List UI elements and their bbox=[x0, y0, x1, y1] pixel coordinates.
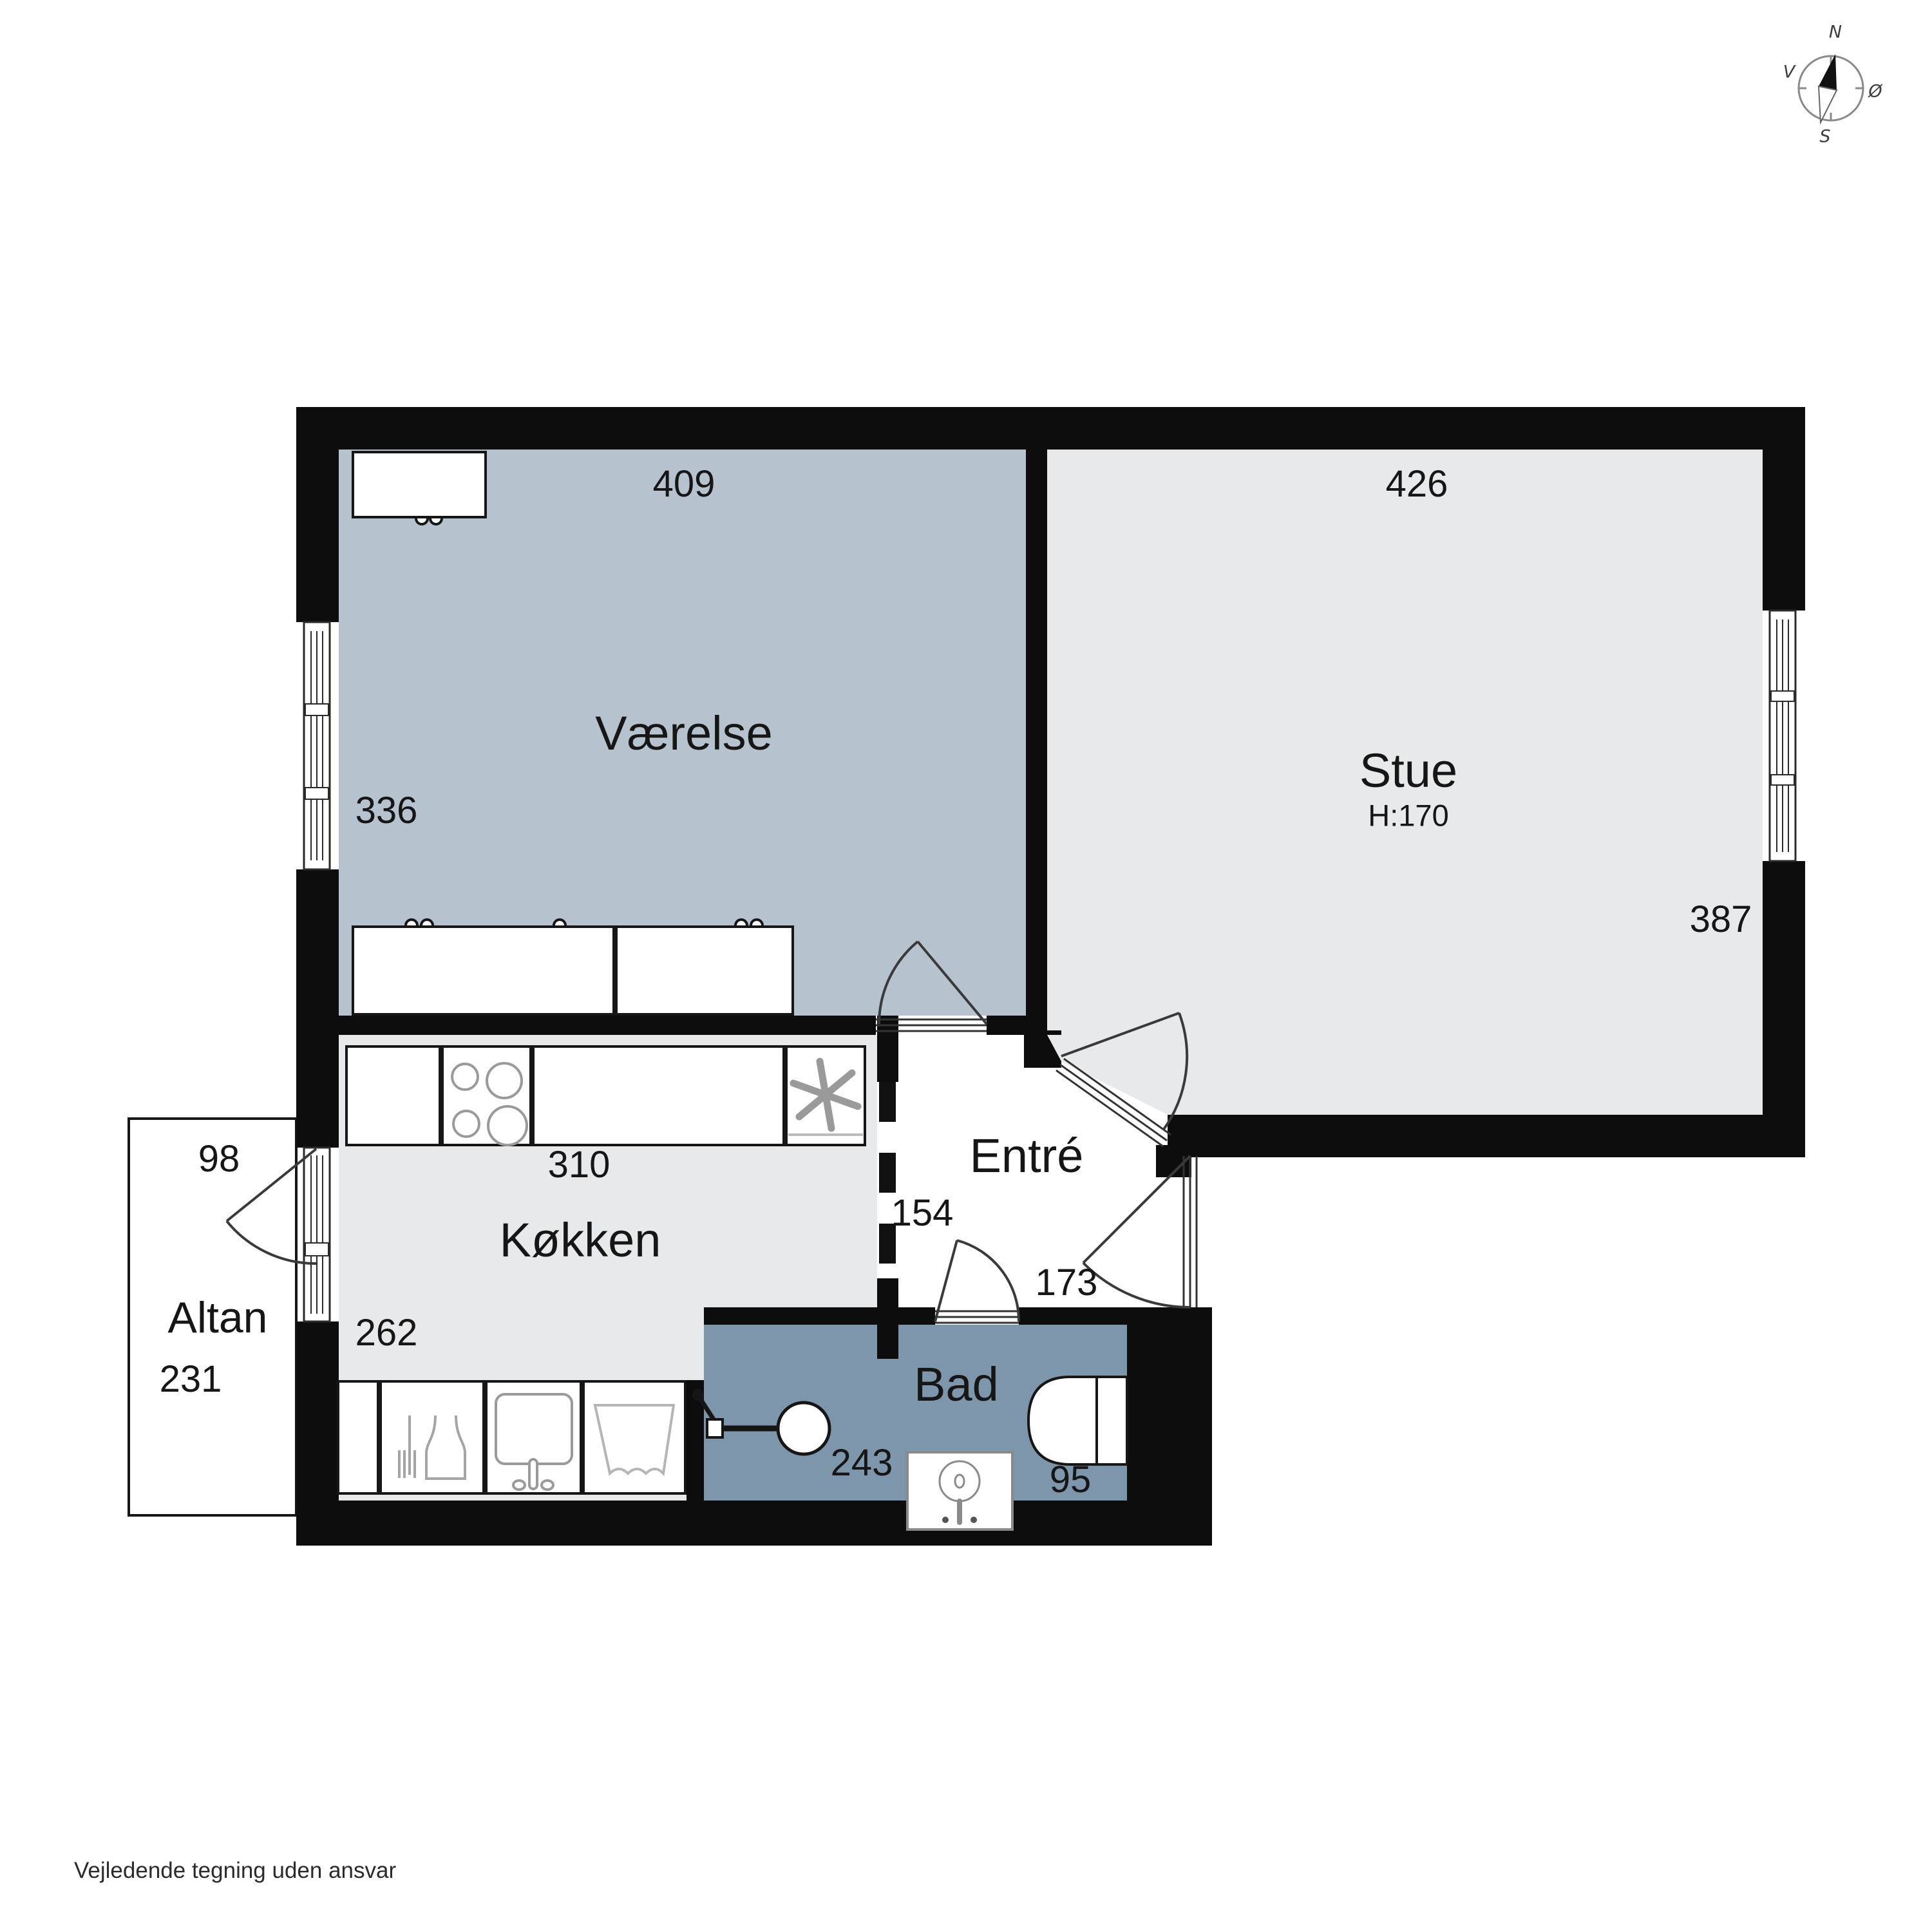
room-label-stue: Stue bbox=[1359, 747, 1457, 795]
stue-right-window bbox=[1770, 611, 1795, 861]
room-label-entre: Entré bbox=[970, 1132, 1084, 1180]
plan-linework bbox=[0, 0, 1932, 1932]
vaerelse-door bbox=[879, 942, 987, 1024]
bathroom-sink-icon bbox=[907, 1452, 1012, 1529]
compass-icon bbox=[1799, 54, 1863, 122]
dim-bad-depth: 95 bbox=[1050, 1461, 1092, 1499]
room-label-koekken: Køkken bbox=[500, 1217, 661, 1264]
stue-ceiling-height: H:170 bbox=[1368, 800, 1448, 831]
dim-koekken-depth: 262 bbox=[355, 1314, 418, 1352]
vaerelse-left-window bbox=[304, 622, 330, 869]
dim-vaerelse-width: 409 bbox=[653, 466, 715, 503]
basket-icon bbox=[595, 1405, 674, 1473]
dim-stue-depth: 387 bbox=[1690, 901, 1752, 938]
toilet-icon bbox=[1028, 1377, 1127, 1464]
disclaimer-text: Vejledende tegning uden ansvar bbox=[74, 1858, 396, 1884]
room-label-vaerelse: Værelse bbox=[595, 710, 773, 757]
shower-icon bbox=[692, 1389, 829, 1454]
stove-burners-icon bbox=[452, 1063, 527, 1145]
dim-entre-width: 154 bbox=[891, 1195, 954, 1232]
entrance-door bbox=[1083, 1156, 1190, 1307]
room-label-bad: Bad bbox=[914, 1361, 999, 1408]
compass-south-label: S bbox=[1819, 127, 1830, 147]
dim-koekken-width: 310 bbox=[548, 1146, 611, 1184]
dim-bad-width: 243 bbox=[831, 1444, 893, 1482]
dim-entre-depth: 173 bbox=[1036, 1264, 1098, 1302]
room-label-altan: Altan bbox=[168, 1296, 268, 1340]
dim-vaerelse-depth: 336 bbox=[355, 792, 418, 829]
compass-north-label: N bbox=[1829, 23, 1842, 43]
floor-plan: Værelse 409 336 Stue H:170 426 387 Køkke… bbox=[0, 0, 1932, 1932]
stue-diagonal-corner bbox=[1047, 1035, 1168, 1115]
dishwasher-icon bbox=[399, 1416, 465, 1479]
extractor-fan-icon bbox=[788, 1061, 863, 1135]
bad-door bbox=[935, 1240, 1019, 1321]
dim-stue-width: 426 bbox=[1386, 466, 1448, 503]
kitchen-sink-icon bbox=[496, 1394, 572, 1490]
compass-west-label: V bbox=[1783, 62, 1795, 82]
dim-altan-depth: 231 bbox=[160, 1361, 222, 1398]
dim-altan-width: 98 bbox=[198, 1141, 240, 1178]
compass-east-label: Ø bbox=[1868, 82, 1882, 102]
